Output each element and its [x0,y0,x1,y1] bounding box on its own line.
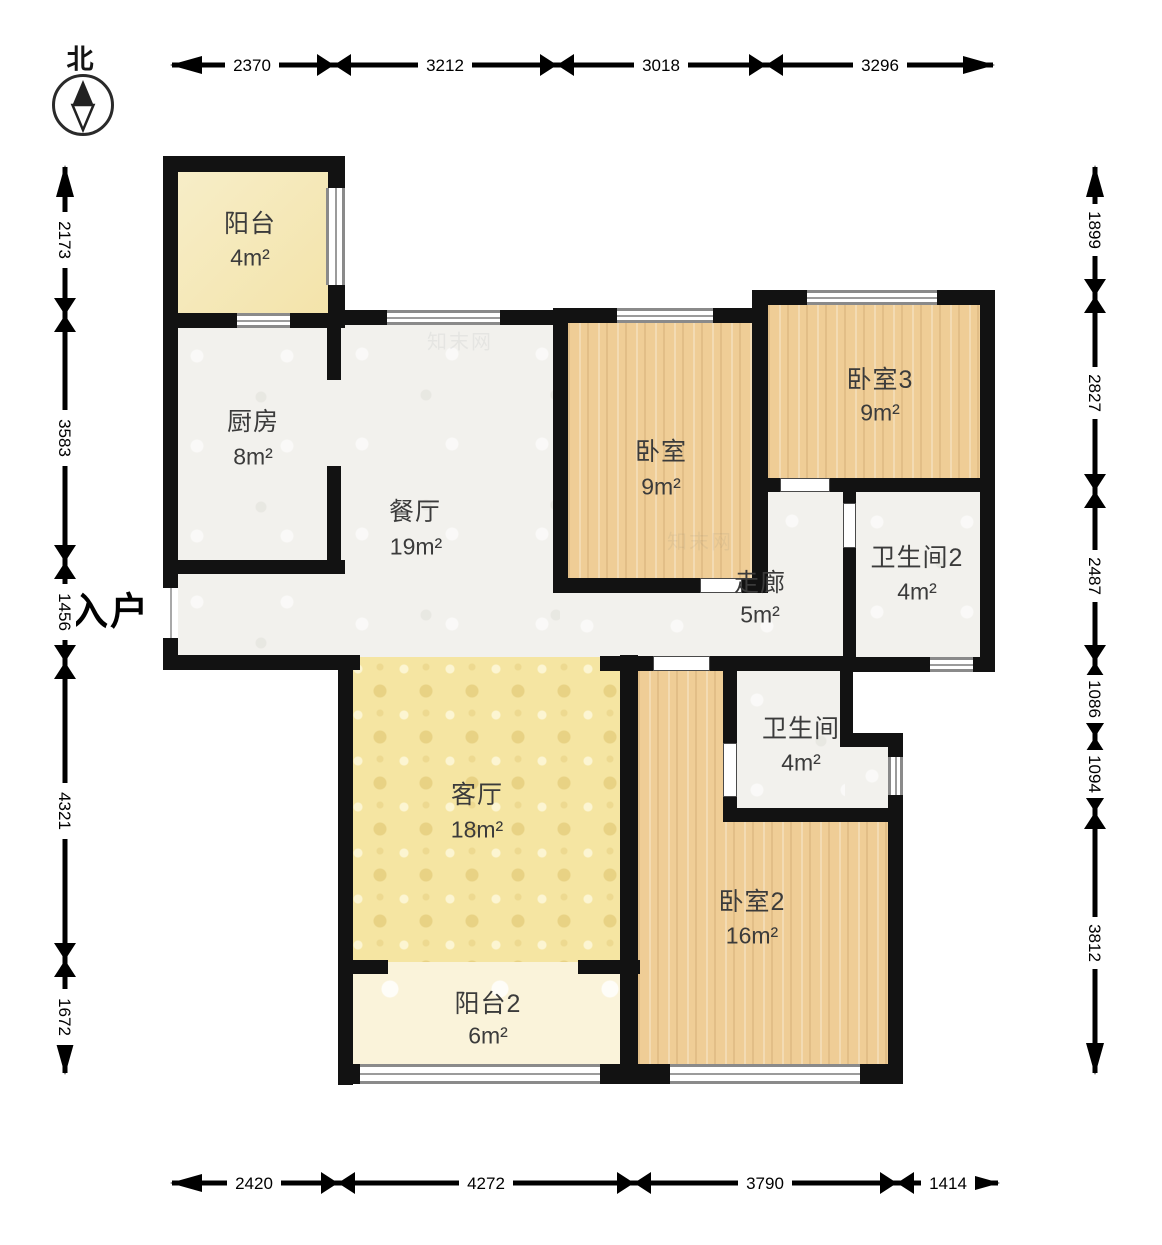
door-opening [723,743,737,797]
room-label-bath2: 卫生间2 [871,538,964,574]
door-opening [653,656,710,671]
window [387,310,500,325]
door-opening [780,478,830,492]
wall [327,322,341,380]
room-label-bedroom2: 卧室2 [719,882,786,918]
compass-north-label: 北 [67,38,94,77]
kitchen-doorway-opening [327,380,341,466]
dim-bottom-1: 2420 [235,1174,273,1193]
room-area-balcony1: 4m² [230,245,270,272]
room-area-bedroom3: 9m² [860,400,900,427]
dim-bottom-3: 3790 [746,1174,784,1193]
room-label-corridor: 走廊 [734,563,786,599]
dim-bottom-2: 4272 [467,1174,505,1193]
room-dining-floor [335,318,560,658]
wall [888,747,903,1084]
dim-right-6: 3812 [1085,924,1104,962]
dim-right-1: 1899 [1085,211,1104,249]
room-bath2-floor [850,486,988,664]
dim-right-3: 2487 [1085,557,1104,595]
room-area-bedroom: 9m² [641,474,681,501]
dim-left-5: 1672 [55,998,74,1036]
wall [620,655,638,1084]
room-area-balcony2: 6m² [468,1023,508,1050]
room-entry-hall-floor [170,566,340,658]
room-corridor-floor-h [560,590,850,658]
window [617,308,713,323]
wall [980,290,995,672]
wall [840,670,853,747]
floor-plan: 知末网 知末网 阳台 4m² 厨房 8m² [0,0,1162,1245]
wall [163,560,345,574]
dim-top-4: 3296 [861,56,899,75]
wall [723,808,903,822]
wall [327,466,341,574]
entrance-door-opening [163,588,178,638]
dim-top-2: 3212 [426,56,464,75]
dim-left-4: 4321 [55,792,74,830]
window [360,1064,600,1084]
watermark: 知末网 [427,326,493,355]
room-area-living: 18m² [451,817,503,844]
room-label-living: 客厅 [451,775,503,811]
door-opening [843,503,856,548]
room-label-balcony1: 阳台 [224,204,276,240]
watermark: 知末网 [667,526,733,555]
window [888,757,903,795]
wall [163,655,360,670]
room-area-dining: 19m² [390,534,442,561]
room-area-corridor: 5m² [740,602,780,629]
wall [163,156,178,588]
room-label-bedroom3: 卧室3 [847,360,914,396]
wall [163,156,345,172]
dim-right-5: 1094 [1085,755,1104,793]
dim-left-2: 3583 [55,419,74,457]
room-label-dining: 餐厅 [389,492,441,528]
window [326,188,345,285]
wall [338,655,353,1085]
wall [553,323,568,593]
room-label-kitchen: 厨房 [227,402,279,438]
dim-right-2: 2827 [1085,374,1104,412]
room-label-balcony2: 阳台2 [455,984,522,1020]
room-area-kitchen: 8m² [233,444,273,471]
dim-top-3: 3018 [642,56,680,75]
window [237,313,290,328]
window [670,1064,860,1084]
wall [752,290,768,593]
entrance-label: 入户 [70,581,150,636]
room-area-bedroom2: 16m² [726,923,778,950]
dim-top-1: 2370 [233,56,271,75]
room-area-bath: 4m² [781,750,821,777]
compass-icon [52,74,114,136]
dim-bottom-4: 1414 [929,1174,967,1193]
dim-right-4: 1086 [1085,680,1104,718]
room-label-bedroom: 卧室 [635,432,687,468]
room-area-bath2: 4m² [897,579,937,606]
wall [163,638,178,670]
window [807,290,937,305]
dim-left-1: 2173 [55,221,74,259]
room-label-bath: 卫生间 [762,709,840,745]
window [930,657,973,672]
compass-needle-icon [55,77,111,133]
room-balcony1-floor [170,165,335,320]
